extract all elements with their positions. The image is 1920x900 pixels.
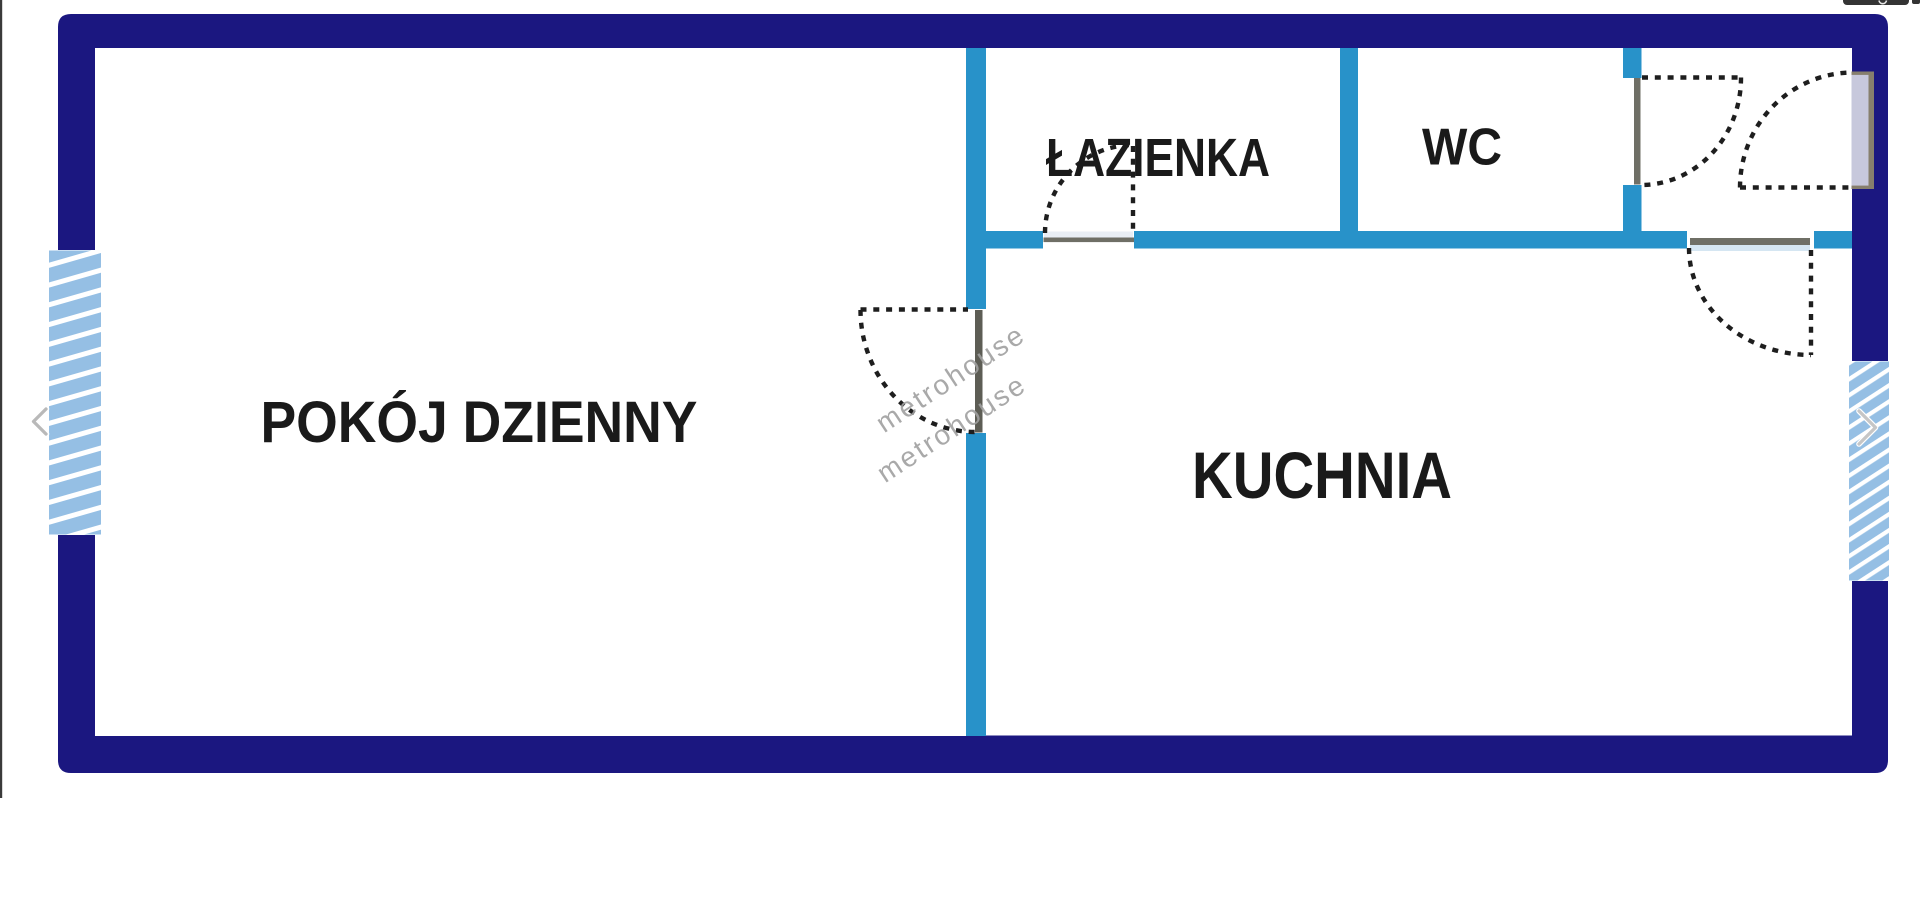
svg-text:KUCHNIA: KUCHNIA: [1192, 438, 1452, 512]
svg-text:WC: WC: [1422, 119, 1502, 177]
svg-text:POKÓJ DZIENNY: POKÓJ DZIENNY: [261, 390, 698, 455]
svg-text:ŁAZIENKA: ŁAZIENKA: [1046, 128, 1270, 188]
